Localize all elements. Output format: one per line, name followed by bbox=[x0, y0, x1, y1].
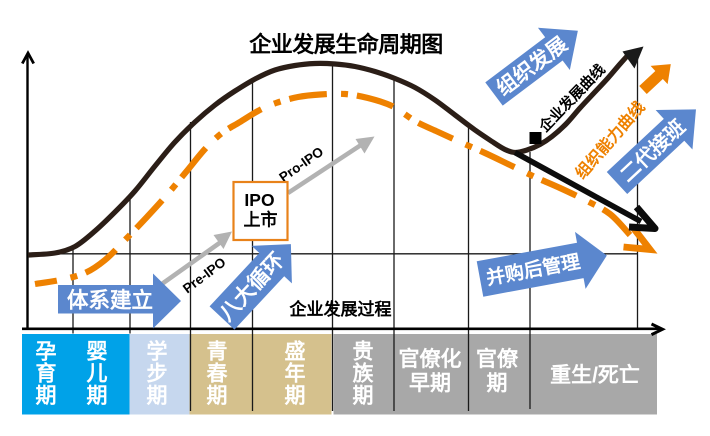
svg-text:学: 学 bbox=[147, 340, 168, 364]
svg-text:体系建立: 体系建立 bbox=[67, 288, 153, 313]
svg-text:期: 期 bbox=[487, 372, 508, 395]
svg-text:期: 期 bbox=[285, 385, 306, 408]
svg-text:早期: 早期 bbox=[409, 372, 451, 395]
svg-text:贵: 贵 bbox=[353, 341, 374, 364]
svg-text:步: 步 bbox=[147, 362, 168, 386]
svg-text:期: 期 bbox=[147, 385, 168, 408]
svg-text:青: 青 bbox=[207, 341, 228, 364]
svg-text:族: 族 bbox=[353, 362, 375, 386]
svg-text:盛: 盛 bbox=[285, 340, 306, 364]
svg-text:婴: 婴 bbox=[87, 341, 108, 364]
svg-text:孕: 孕 bbox=[36, 341, 57, 364]
svg-text:期: 期 bbox=[207, 385, 228, 408]
svg-text:企业发展过程: 企业发展过程 bbox=[289, 299, 392, 319]
svg-text:年: 年 bbox=[285, 362, 306, 386]
svg-text:期: 期 bbox=[87, 385, 108, 408]
svg-text:上市: 上市 bbox=[244, 210, 278, 230]
svg-text:重生/死亡: 重生/死亡 bbox=[550, 363, 640, 387]
svg-text:官僚化: 官僚化 bbox=[399, 347, 462, 371]
svg-text:期: 期 bbox=[36, 385, 57, 408]
svg-text:期: 期 bbox=[353, 385, 374, 408]
svg-text:春: 春 bbox=[207, 362, 229, 386]
svg-text:官僚: 官僚 bbox=[476, 347, 519, 371]
svg-text:企业发展生命周期图: 企业发展生命周期图 bbox=[248, 32, 443, 57]
svg-text:儿: 儿 bbox=[87, 363, 108, 386]
svg-text:IPO: IPO bbox=[244, 190, 274, 210]
svg-text:育: 育 bbox=[36, 362, 57, 386]
